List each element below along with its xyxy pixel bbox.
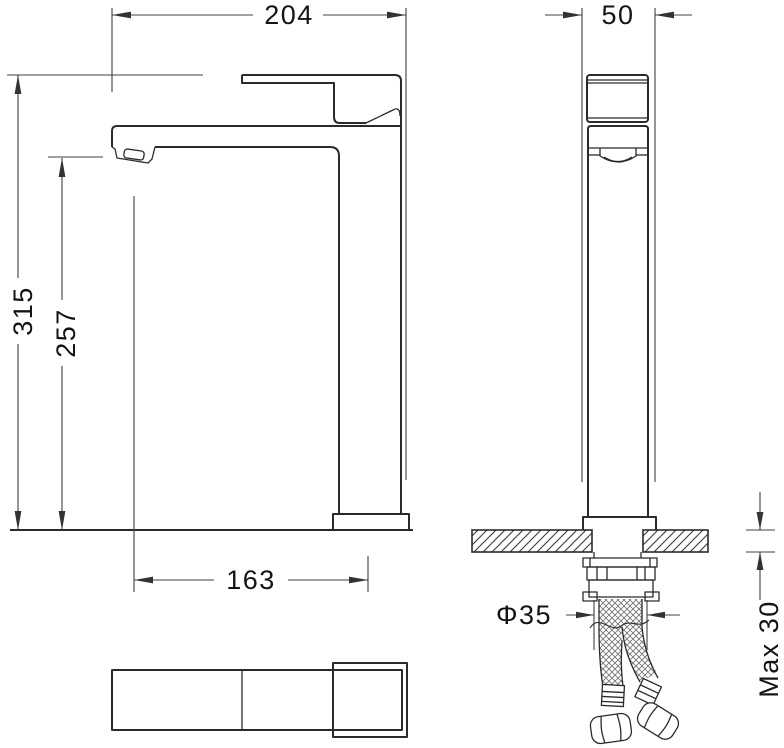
hose-left-collar xyxy=(601,684,624,706)
spout-body-plan xyxy=(112,670,402,730)
arrowhead-right xyxy=(576,612,594,618)
dim-163-label: 163 xyxy=(226,565,276,595)
arrowhead-left xyxy=(112,12,131,19)
hose-right-nut xyxy=(634,699,682,742)
hose-left-nut xyxy=(589,712,632,744)
base-side xyxy=(583,517,656,530)
arrowhead-up xyxy=(757,552,764,570)
hose-bundle xyxy=(599,599,642,627)
hex-nut xyxy=(589,712,632,744)
countertop-right xyxy=(643,530,708,552)
dim-257: 257 xyxy=(48,157,103,530)
handle-knob-side xyxy=(587,75,648,122)
dimensions: 204 50 315 257 xyxy=(7,0,784,698)
lever-top-and-body-right-edge xyxy=(242,75,401,514)
dim-50: 50 xyxy=(545,0,692,482)
dim-257-label: 257 xyxy=(51,308,81,358)
arrowhead-down xyxy=(757,512,764,530)
lever-tip-bevel xyxy=(366,109,400,123)
collar-body xyxy=(635,679,662,706)
nut-flange xyxy=(589,580,653,597)
arrowhead-left xyxy=(655,12,674,19)
faucet-technical-drawing-page: 204 50 315 257 xyxy=(0,0,784,748)
aerator-face xyxy=(123,149,144,161)
dim-hole-diameter: Φ35 xyxy=(496,600,680,650)
handle-plan xyxy=(333,663,407,737)
side-view xyxy=(472,75,708,745)
arrowhead-left xyxy=(134,577,153,584)
dim-50-label: 50 xyxy=(601,0,634,30)
collar-body xyxy=(601,684,624,706)
arrowhead-down xyxy=(59,511,66,530)
dim-315-label: 315 xyxy=(8,286,38,336)
supply-hoses xyxy=(589,599,682,745)
top-view xyxy=(112,663,407,737)
faucet-technical-drawing: 204 50 315 257 xyxy=(0,0,784,748)
spout-bottom-and-inner-edge xyxy=(155,147,339,514)
dim-315: 315 xyxy=(7,75,203,530)
spout-top-edge xyxy=(112,126,401,131)
base-front xyxy=(333,514,409,529)
arrowhead-right xyxy=(387,12,406,19)
body-column-side xyxy=(588,126,648,517)
arrowhead-up xyxy=(15,75,22,94)
arrowhead-down xyxy=(15,511,22,530)
front-view xyxy=(10,75,413,530)
dim-max30-label: Max 30 xyxy=(754,600,784,698)
mounting-hardware xyxy=(583,552,659,601)
dim-204-label: 204 xyxy=(264,0,314,30)
hose-right-collar xyxy=(635,679,662,706)
arrowhead-right xyxy=(349,577,368,584)
hose-left-fill xyxy=(599,627,623,687)
dim-163: 163 xyxy=(134,196,368,595)
countertop-left xyxy=(472,530,592,552)
aerator-side xyxy=(600,149,636,163)
arrowhead-up xyxy=(59,158,66,177)
dim-204: 204 xyxy=(112,0,406,480)
arrowhead-left xyxy=(647,612,665,618)
lever-underside xyxy=(242,75,366,123)
dim-max-30: Max 30 xyxy=(746,492,784,698)
washer xyxy=(583,558,657,567)
arrowhead-right xyxy=(563,12,582,19)
dim-phi35-label: Φ35 xyxy=(496,600,552,630)
